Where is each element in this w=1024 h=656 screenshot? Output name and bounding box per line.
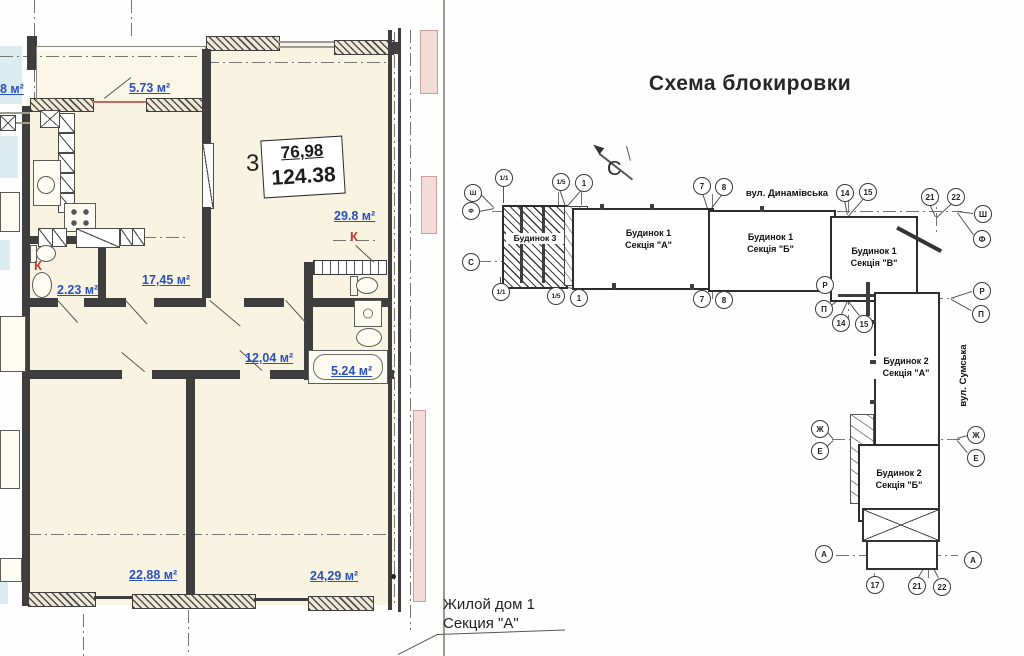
area-label-hall: 12,04 м² bbox=[245, 351, 293, 365]
wall bbox=[398, 28, 401, 612]
axis-marker: 21 bbox=[921, 188, 939, 206]
toilet-bowl bbox=[356, 277, 378, 294]
tick bbox=[690, 284, 694, 290]
block-label-b1v: Будинок 1 Секція "В" bbox=[836, 246, 912, 269]
wall-thin bbox=[443, 0, 445, 656]
junction-wall bbox=[866, 282, 870, 316]
block-label-text: Будинок 1 bbox=[601, 228, 696, 240]
wall-hatched bbox=[132, 594, 256, 609]
crossed-block bbox=[862, 508, 940, 542]
axis-marker: Е bbox=[967, 449, 985, 467]
caption-leader bbox=[398, 634, 438, 655]
marker-leader bbox=[957, 211, 973, 214]
axis-marker: 1/1 bbox=[492, 283, 510, 301]
block-label-b2a: Будинок 2 Секція "А" bbox=[874, 356, 938, 379]
survey-dot bbox=[391, 574, 396, 579]
wall-thin bbox=[278, 46, 334, 48]
axis-marker: 7 bbox=[693, 290, 711, 308]
area-label-bedroom1: 22,88 м² bbox=[129, 568, 177, 582]
block-budynok3-wall bbox=[520, 207, 523, 283]
marker-leader bbox=[841, 301, 848, 314]
marker-leader bbox=[848, 301, 860, 316]
wall bbox=[202, 49, 211, 143]
wall-hatched bbox=[206, 36, 280, 51]
street-label-dynamivska: вул. Динамівська bbox=[742, 188, 832, 199]
axis-marker: 1/1 bbox=[495, 169, 513, 187]
neighbor-room bbox=[0, 316, 26, 372]
duct-shaft bbox=[58, 113, 75, 133]
washing-machine bbox=[354, 300, 382, 327]
riser-k-label: К bbox=[34, 258, 42, 273]
axis-marker: Ж bbox=[967, 426, 985, 444]
block-label-b1a: Будинок 1 Секція "А" bbox=[600, 228, 697, 251]
area-label-neighbor: 8 м² bbox=[0, 82, 24, 96]
block-label-text: Будинок 3 bbox=[507, 233, 563, 244]
total-area-value: 124.38 bbox=[263, 163, 344, 192]
plan-axis-line bbox=[28, 534, 390, 535]
marker-leader bbox=[957, 213, 974, 235]
axis-marker: П bbox=[972, 305, 990, 323]
balcony-rail bbox=[36, 46, 206, 101]
wall bbox=[254, 598, 308, 601]
window-sill-red bbox=[92, 101, 146, 103]
riser-k-label: К bbox=[350, 229, 358, 244]
area-label-wc: 2.23 м² bbox=[57, 283, 98, 297]
axis-marker: Ж bbox=[811, 420, 829, 438]
axis-marker: Р bbox=[816, 276, 834, 294]
axis-marker: 15 bbox=[855, 315, 873, 333]
wall bbox=[202, 207, 211, 304]
wall-hatched bbox=[28, 592, 96, 607]
block-label-text: Будинок 1 bbox=[723, 232, 818, 244]
plan-axis-line bbox=[394, 32, 395, 604]
block-label-text: Секція "А" bbox=[601, 240, 696, 252]
block-budynok3-wall bbox=[542, 207, 545, 283]
axis-marker: 1/5 bbox=[552, 173, 570, 191]
axis-marker: Ш bbox=[464, 184, 482, 202]
marker-leader bbox=[503, 185, 504, 203]
wall bbox=[94, 596, 132, 599]
plan-axis-line bbox=[410, 30, 411, 630]
door-opening bbox=[240, 370, 270, 379]
marker-leader bbox=[957, 440, 968, 453]
bath-sink bbox=[356, 328, 382, 347]
tick bbox=[612, 283, 616, 289]
block-label-text: Будинок 1 bbox=[837, 246, 911, 258]
plan-axis-line bbox=[188, 610, 189, 656]
area-label-living: 29.8 м² bbox=[334, 209, 375, 223]
loggia-strip-1 bbox=[420, 30, 438, 94]
scanned-drawing-page: 76,98 124.38 3 5.73 м² 17,45 м² 2.23 м² … bbox=[0, 0, 1024, 656]
axis-marker: А bbox=[815, 545, 833, 563]
wall-thin bbox=[0, 112, 30, 114]
block-label-b1b: Будинок 1 Секція "Б" bbox=[722, 232, 819, 255]
wc-sink bbox=[32, 272, 52, 298]
area-label-kitchen: 17,45 м² bbox=[142, 273, 190, 287]
axis-marker: 15 bbox=[859, 183, 877, 201]
junction-wall bbox=[838, 294, 874, 297]
building-caption-line2: Секция "А" bbox=[443, 615, 519, 632]
counter bbox=[76, 228, 120, 248]
axis-marker: 22 bbox=[947, 188, 965, 206]
axis-marker: 8 bbox=[715, 291, 733, 309]
axis-line-s bbox=[478, 261, 504, 262]
block-label-text: Секція "В" bbox=[837, 258, 911, 270]
counter-box bbox=[52, 228, 67, 247]
plan-axis-line bbox=[83, 614, 84, 656]
area-label-bedroom2: 24,29 м² bbox=[310, 569, 358, 583]
axis-marker: Ш bbox=[974, 205, 992, 223]
axis-marker: С bbox=[462, 253, 480, 271]
block-label-budynok3: Будинок 3 bbox=[506, 233, 564, 244]
axis-marker: Ф bbox=[973, 230, 991, 248]
counter-box bbox=[132, 228, 145, 246]
area-label-bathroom: 5.24 м² bbox=[331, 364, 372, 378]
axis-marker: 8 bbox=[715, 178, 733, 196]
block-label-text: Будинок 2 bbox=[875, 356, 937, 368]
marker-leader bbox=[848, 198, 864, 216]
block-label-text: Секція "Б" bbox=[723, 244, 818, 256]
marker-leader bbox=[951, 291, 972, 299]
block-label-b2b: Будинок 2 Секція "Б" bbox=[862, 468, 936, 491]
door-opening bbox=[122, 370, 152, 379]
wall-hatched bbox=[334, 40, 394, 55]
axis-marker: 1/5 bbox=[547, 287, 565, 305]
axis-marker: 14 bbox=[836, 184, 854, 202]
apartment-info-box: 76,98 124.38 bbox=[260, 136, 345, 199]
bottom-block bbox=[866, 540, 938, 570]
duct-shaft bbox=[58, 133, 75, 153]
axis-marker: Ф bbox=[462, 202, 480, 220]
north-arrow-head bbox=[591, 141, 605, 154]
block-label-text: Секція "Б" bbox=[863, 480, 935, 492]
street-label-sumska: вул. Сумська bbox=[958, 338, 969, 413]
kitchen-sink-bowl bbox=[37, 176, 55, 194]
axis-marker: Р bbox=[973, 282, 991, 300]
neighbor-fill-2 bbox=[0, 136, 18, 178]
wall bbox=[388, 30, 392, 610]
block-label-text: Секція "А" bbox=[875, 368, 937, 380]
neighbor-room bbox=[0, 192, 20, 232]
axis-marker: 1 bbox=[575, 174, 593, 192]
tick bbox=[760, 206, 764, 212]
tick bbox=[870, 400, 876, 404]
axis-marker: 22 bbox=[933, 578, 951, 596]
axis-marker: 17 bbox=[866, 576, 884, 594]
axis-marker: А bbox=[964, 551, 982, 569]
axis-marker: 7 bbox=[693, 177, 711, 195]
loggia-strip-3 bbox=[413, 410, 426, 602]
wall-thin bbox=[278, 41, 334, 43]
axis-marker: Е bbox=[811, 442, 829, 460]
block-label-text: Будинок 2 bbox=[863, 468, 935, 480]
rooms-count: 3 bbox=[246, 150, 259, 178]
tick bbox=[600, 204, 604, 210]
living-area-value: 76,98 bbox=[262, 140, 343, 165]
marker-leader bbox=[566, 189, 582, 207]
neighbor-room bbox=[0, 558, 22, 582]
north-arrow-barb bbox=[626, 146, 631, 161]
vent-box bbox=[0, 115, 16, 131]
axis-marker: П bbox=[815, 300, 833, 318]
vent-box bbox=[40, 110, 60, 128]
block-budynok3 bbox=[502, 205, 568, 289]
axis-marker: 14 bbox=[832, 314, 850, 332]
building-caption-line1: Жилой дом 1 bbox=[443, 596, 535, 613]
neighbor-room bbox=[0, 430, 20, 489]
tick bbox=[870, 360, 876, 364]
neighbor-fill-3 bbox=[0, 240, 10, 270]
scheme-title: Схема блокировки bbox=[560, 72, 940, 96]
wall-tiled bbox=[313, 260, 387, 275]
marker-leader bbox=[951, 299, 972, 311]
axis-marker: 1 bbox=[570, 289, 588, 307]
area-label-balcony: 5.73 м² bbox=[129, 81, 170, 95]
north-label: С bbox=[607, 158, 621, 181]
axis-marker: 21 bbox=[908, 577, 926, 595]
duct-shaft bbox=[202, 143, 214, 209]
marker-leader bbox=[559, 189, 566, 206]
plan-axis-line bbox=[206, 62, 392, 63]
wall-hatched bbox=[308, 596, 374, 611]
loggia-strip-2 bbox=[421, 176, 437, 234]
tick bbox=[650, 204, 654, 210]
wall bbox=[186, 379, 195, 601]
plan-axis-line bbox=[131, 0, 132, 40]
